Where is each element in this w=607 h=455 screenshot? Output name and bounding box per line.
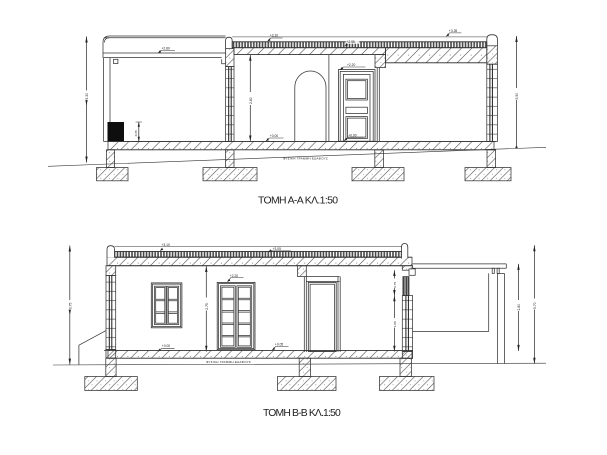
svg-text:+2.20: +2.20 bbox=[347, 63, 356, 67]
svg-text:+3.10: +3.10 bbox=[162, 243, 171, 247]
svg-text:+3.10: +3.10 bbox=[270, 33, 279, 37]
svg-text:+3.35: +3.35 bbox=[449, 29, 458, 33]
svg-text:3.75: 3.75 bbox=[69, 302, 73, 309]
svg-text:ΦΥΣΙΚΗ ΓΡΑΜΜΗ ΕΔΑΦΟΥΣ: ΦΥΣΙΚΗ ΓΡΑΜΜΗ ΕΔΑΦΟΥΣ bbox=[206, 360, 251, 364]
svg-text:ΦΥΣΙΚΗ ΓΡΑΜΜΗ ΕΔΑΦΟΥΣ: ΦΥΣΙΚΗ ΓΡΑΜΜΗ ΕΔΑΦΟΥΣ bbox=[283, 157, 328, 161]
svg-text:5.70: 5.70 bbox=[533, 302, 537, 309]
svg-text:0.65: 0.65 bbox=[134, 130, 138, 136]
svg-text:ΤΟΜΗ Β-Β ΚΛ.1:50: ΤΟΜΗ Β-Β ΚΛ.1:50 bbox=[263, 408, 341, 419]
svg-text:+3.05: +3.05 bbox=[273, 247, 282, 251]
svg-text:1.80: 1.80 bbox=[393, 321, 397, 327]
svg-text:+0.00: +0.00 bbox=[270, 134, 279, 138]
svg-text:+2.20: +2.20 bbox=[230, 274, 239, 278]
svg-text:+2.80: +2.80 bbox=[162, 46, 171, 50]
svg-text:2.80: 2.80 bbox=[249, 97, 253, 104]
svg-text:5.30: 5.30 bbox=[85, 93, 89, 100]
svg-text:+0.00: +0.00 bbox=[348, 134, 357, 138]
svg-text:+0.05: +0.05 bbox=[275, 343, 284, 347]
svg-text:2.80: 2.80 bbox=[517, 304, 521, 311]
svg-text:+2.95: +2.95 bbox=[346, 40, 355, 44]
svg-text:ΤΟΜΗ Α-Α ΚΛ.1:50: ΤΟΜΗ Α-Α ΚΛ.1:50 bbox=[258, 196, 338, 207]
svg-text:2.75: 2.75 bbox=[205, 303, 209, 310]
svg-text:+0.00: +0.00 bbox=[162, 344, 171, 348]
svg-text:0.75: 0.75 bbox=[393, 282, 397, 288]
svg-text:5.50: 5.50 bbox=[515, 93, 519, 100]
